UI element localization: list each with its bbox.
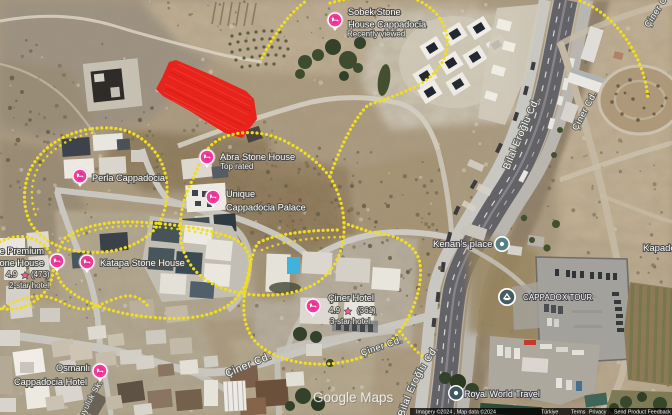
svg-text:Google Maps: Google Maps	[313, 390, 394, 405]
svg-text:Privacy: Privacy	[589, 410, 607, 415]
svg-text:(361): (361)	[357, 306, 376, 315]
svg-text:Cappadocia Palace: Cappadocia Palace	[226, 203, 306, 213]
svg-text:Abra Stone House: Abra Stone House	[220, 152, 295, 162]
svg-text:Imagery ©2024 , Map data ©2024: Imagery ©2024 , Map data ©2024	[416, 409, 496, 415]
svg-text:Türkiye: Türkiye	[541, 410, 558, 415]
svg-text:(473): (473)	[31, 270, 50, 279]
svg-text:Royal World Travel: Royal World Travel	[464, 389, 540, 399]
svg-text:Osmanlı: Osmanlı	[56, 363, 90, 373]
svg-text:Kapadok: Kapadok	[643, 243, 672, 254]
svg-text:CAPPADOX TOUR: CAPPADOX TOUR	[523, 293, 592, 302]
svg-text:Unique: Unique	[226, 189, 255, 199]
svg-text:House Cappadocia: House Cappadocia	[348, 20, 427, 30]
svg-text:Perla Cappadocia: Perla Cappadocia	[92, 173, 166, 183]
svg-text:Top rated: Top rated	[220, 162, 253, 171]
svg-text:4.9: 4.9	[329, 306, 341, 315]
svg-text:ne Premium: ne Premium	[0, 246, 44, 256]
svg-text:Send Product Feedback: Send Product Feedback	[614, 410, 671, 415]
svg-text:Çiner Hotel: Çiner Hotel	[328, 293, 374, 303]
svg-text:2-star hotel: 2-star hotel	[9, 281, 49, 290]
svg-text:Sobek Stone: Sobek Stone	[348, 7, 401, 17]
svg-text:Cappadocia Hotel: Cappadocia Hotel	[14, 377, 87, 387]
svg-text:tone House: tone House	[0, 258, 44, 268]
svg-text:Terms: Terms	[571, 410, 586, 415]
svg-text:Katapa Stone House: Katapa Stone House	[100, 258, 185, 268]
svg-text:4.9: 4.9	[6, 270, 18, 279]
svg-text:Kenan's place: Kenan's place	[433, 239, 492, 250]
svg-text:Recently viewed: Recently viewed	[347, 30, 405, 39]
svg-text:3-star hotel: 3-star hotel	[330, 317, 370, 326]
